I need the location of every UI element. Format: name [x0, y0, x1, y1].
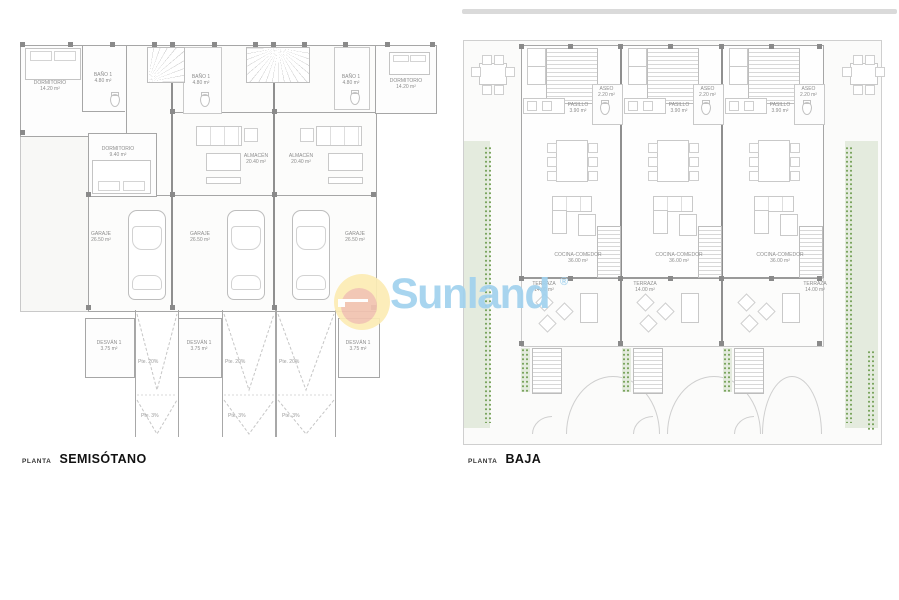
closet: [729, 48, 748, 67]
pillar: [68, 42, 73, 47]
sofa-chaise: [754, 210, 769, 234]
planter-box: [521, 348, 530, 392]
room-label-bano: BAÑO 14.80 m²: [331, 74, 371, 86]
room-area: 3.75 m²: [177, 346, 221, 352]
room-area: 2.20 m²: [693, 92, 722, 98]
pillar: [568, 44, 573, 49]
room-label-cocina: COCINA-COMEDOR36.00 m²: [750, 252, 810, 264]
room-area: 3.75 m²: [336, 346, 380, 352]
room-area: 14.20 m²: [20, 86, 80, 92]
exterior-stairs: [633, 348, 663, 394]
patio-area: [20, 135, 90, 312]
exterior-stairs: [734, 348, 764, 394]
room-area: 3.75 m²: [87, 346, 131, 352]
patio-chair: [875, 67, 885, 77]
room-label-desvan: DESVÁN 13.75 m²: [336, 340, 380, 352]
pillar: [519, 341, 524, 346]
pillar: [668, 44, 673, 49]
pillar: [212, 42, 217, 47]
room-area: 14.00 m²: [795, 287, 835, 293]
pillar: [170, 305, 175, 310]
wall: [82, 111, 125, 112]
patio-chair: [482, 55, 492, 65]
plan-title-prefix: PLANTA: [22, 458, 51, 465]
pillar: [302, 42, 307, 47]
closet: [628, 66, 647, 85]
room-area: 36.00 m²: [750, 258, 810, 264]
room-label-cocina: COCINA-COMEDOR36.00 m²: [548, 252, 608, 264]
kitchen-sink: [729, 101, 739, 111]
sofa-chaise: [552, 210, 567, 234]
room-label-dormitorio: DORMITORIO14.20 m²: [383, 78, 429, 90]
slope-label: Pte. 3%: [228, 413, 246, 419]
armchair: [244, 128, 258, 142]
chair: [790, 157, 800, 167]
chair: [749, 171, 759, 181]
pillar: [110, 42, 115, 47]
room-label-pasillo: PASILLO3.90 m²: [765, 102, 795, 114]
pillar: [86, 305, 91, 310]
sofa: [316, 126, 362, 146]
pillar: [152, 42, 157, 47]
slope-label: Pte. 20%: [279, 359, 299, 365]
room-label-garaje: GARAJE26.50 m²: [180, 231, 220, 243]
room-area: 4.80 m²: [83, 78, 123, 84]
patio-chair: [482, 85, 492, 95]
patio-chair: [865, 55, 875, 65]
closet: [729, 66, 748, 85]
sunland-logo: Sunland ®: [330, 266, 590, 340]
patio-chair: [865, 85, 875, 95]
bed: [389, 52, 430, 75]
plan-title-prefix: PLANTA: [468, 458, 497, 465]
room-area: 20.40 m²: [232, 159, 280, 165]
patio-table: [850, 63, 878, 85]
room-label-terraza: TERRAZA14.00 m²: [625, 281, 665, 293]
dining-table: [758, 140, 790, 182]
room-area: 3.90 m²: [765, 108, 795, 114]
coffee-table: [679, 214, 697, 236]
car-icon: [128, 210, 166, 300]
room-area: 26.50 m²: [180, 237, 220, 243]
bed: [92, 160, 151, 194]
patio-chair: [853, 55, 863, 65]
dining-table: [556, 140, 588, 182]
lounger: [681, 293, 699, 323]
pillar: [371, 192, 376, 197]
pillar: [769, 276, 774, 281]
patio-chair: [471, 67, 481, 77]
pillar: [430, 42, 435, 47]
room-label-aseo: ASEO2.20 m²: [693, 86, 722, 98]
pillar: [719, 44, 724, 49]
coffee-table: [578, 214, 596, 236]
room-label-almacen: ALMACÉN20.40 m²: [277, 153, 325, 165]
bed: [25, 48, 81, 80]
kitchen-hob: [542, 101, 552, 111]
pillar: [343, 42, 348, 47]
closet: [527, 66, 546, 85]
patio-chair: [505, 67, 515, 77]
lounger: [782, 293, 800, 323]
stairs: [748, 48, 800, 104]
closet: [527, 48, 546, 67]
party-wall: [171, 45, 173, 310]
planter-box: [622, 348, 631, 392]
patio-chair: [842, 67, 852, 77]
room-label-aseo: ASEO2.20 m²: [592, 86, 621, 98]
room-area: 2.20 m²: [592, 92, 621, 98]
room-area: 3.90 m²: [664, 108, 694, 114]
pillar: [385, 42, 390, 47]
brand-wordmark: Sunland: [390, 270, 549, 319]
slope-text: Pte. 3%: [282, 413, 300, 419]
slope-label: Pte. 20%: [138, 359, 158, 365]
chair: [588, 171, 598, 181]
chair: [790, 143, 800, 153]
slope-text: Pte. 20%: [138, 359, 158, 365]
kitchen-sink: [628, 101, 638, 111]
plan-title-name: SEMISÓTANO: [59, 452, 146, 466]
slope-text: Pte. 20%: [225, 359, 245, 365]
room-label-terraza: TERRAZA14.00 m²: [795, 281, 835, 293]
chair: [648, 171, 658, 181]
room-area: 2.20 m²: [794, 92, 823, 98]
stairs: [647, 48, 699, 104]
sunset-circle-icon: [341, 288, 377, 324]
plant-row: [845, 146, 854, 423]
party-wall: [273, 45, 275, 310]
armchair: [300, 128, 314, 142]
room-label-bano: BAÑO 14.80 m²: [181, 74, 221, 86]
room-label-dormitorio: DORMITORIO14.20 m²: [20, 80, 80, 92]
room-label-bano: BAÑO 14.80 m²: [83, 72, 123, 84]
sofa: [196, 126, 242, 146]
chair: [648, 157, 658, 167]
plan-semisotano-drawing: Pte. 20% Pte. 3% Pte. 20% Pte. 3% Pte. 2…: [0, 0, 460, 470]
plan-title-name: BAJA: [505, 452, 541, 466]
dining-table: [657, 140, 689, 182]
coffee-table: [780, 214, 798, 236]
chair: [547, 157, 557, 167]
pillar: [170, 192, 175, 197]
exterior-stairs: [532, 348, 562, 394]
room-label-almacen: ALMACÉN20.40 m²: [232, 153, 280, 165]
pillar: [86, 192, 91, 197]
pillar: [272, 305, 277, 310]
pillar: [769, 44, 774, 49]
slope-label: Pte. 3%: [141, 413, 159, 419]
stairs: [546, 48, 598, 104]
roof-edge-band: [462, 9, 897, 14]
room-label-garaje: GARAJE26.50 m²: [335, 231, 375, 243]
stairs: [246, 47, 310, 83]
chair: [749, 157, 759, 167]
pillar: [618, 341, 623, 346]
car-icon: [227, 210, 265, 300]
pillar: [719, 341, 724, 346]
slope-label: Pte. 3%: [282, 413, 300, 419]
plan-title-semisotano: PLANTA SEMISÓTANO: [22, 452, 147, 466]
patio-table: [479, 63, 507, 85]
room-area: 20.40 m²: [277, 159, 325, 165]
plan-baja-drawing: ASEO2.20 m² ASEO2.20 m² ASEO2.20 m² PASI…: [455, 0, 899, 470]
room-label-dormitorio-pequeno: DORMITORIO9.40 m²: [90, 146, 146, 158]
pillar: [272, 192, 277, 197]
pillar: [668, 276, 673, 281]
room-area: 14.20 m²: [383, 84, 429, 90]
room-area: 3.90 m²: [563, 108, 593, 114]
chair: [547, 143, 557, 153]
slope-text: Pte. 3%: [228, 413, 246, 419]
chair: [547, 171, 557, 181]
pillar: [271, 42, 276, 47]
room-label-pasillo: PASILLO3.90 m²: [664, 102, 694, 114]
stairs: [147, 47, 185, 83]
pillar: [170, 42, 175, 47]
patio-chair: [853, 85, 863, 95]
chair: [588, 143, 598, 153]
pillar: [519, 44, 524, 49]
pillar: [253, 42, 258, 47]
room-label-desvan: DESVÁN 13.75 m²: [87, 340, 131, 352]
room-area: 9.40 m²: [90, 152, 146, 158]
room-area: 4.80 m²: [331, 80, 371, 86]
room-label-pasillo: PASILLO3.90 m²: [563, 102, 593, 114]
pillar: [20, 42, 25, 47]
tv-bench: [328, 177, 363, 184]
room-label-cocina: COCINA-COMEDOR36.00 m²: [649, 252, 709, 264]
chair: [689, 143, 699, 153]
pillar: [170, 109, 175, 114]
chair: [749, 143, 759, 153]
kitchen-hob: [643, 101, 653, 111]
chair: [588, 157, 598, 167]
room-label-desvan: DESVÁN 13.75 m²: [177, 340, 221, 352]
coffee-table: [328, 153, 363, 171]
slope-text: Pte. 20%: [279, 359, 299, 365]
pillar: [272, 109, 277, 114]
slope-label: Pte. 20%: [225, 359, 245, 365]
closet: [628, 48, 647, 67]
horizon-step: [338, 299, 345, 307]
room-area: 36.00 m²: [548, 258, 608, 264]
chair: [790, 171, 800, 181]
chair: [689, 157, 699, 167]
planter-box: [723, 348, 732, 392]
registered-mark: ®: [560, 276, 568, 288]
tv-bench: [206, 177, 241, 184]
pillar: [20, 130, 25, 135]
kitchen-sink: [527, 101, 537, 111]
room-label-aseo: ASEO2.20 m²: [794, 86, 823, 98]
patio-chair: [494, 85, 504, 95]
room-area: 4.80 m²: [181, 80, 221, 86]
pillar: [618, 276, 623, 281]
room-area: 14.00 m²: [625, 287, 665, 293]
patio-chair: [494, 55, 504, 65]
pillar: [817, 44, 822, 49]
plan-title-baja: PLANTA BAJA: [468, 452, 541, 466]
kitchen-hob: [744, 101, 754, 111]
room-area: 26.50 m²: [81, 237, 121, 243]
slope-text: Pte. 3%: [141, 413, 159, 419]
sofa-chaise: [653, 210, 668, 234]
room-area: 26.50 m²: [335, 237, 375, 243]
pillar: [719, 276, 724, 281]
pillar: [817, 341, 822, 346]
car-icon: [292, 210, 330, 300]
pillar: [618, 44, 623, 49]
room-label-garaje: GARAJE26.50 m²: [81, 231, 121, 243]
room-area: 36.00 m²: [649, 258, 709, 264]
plant-row: [867, 350, 876, 430]
chair: [689, 171, 699, 181]
chair: [648, 143, 658, 153]
